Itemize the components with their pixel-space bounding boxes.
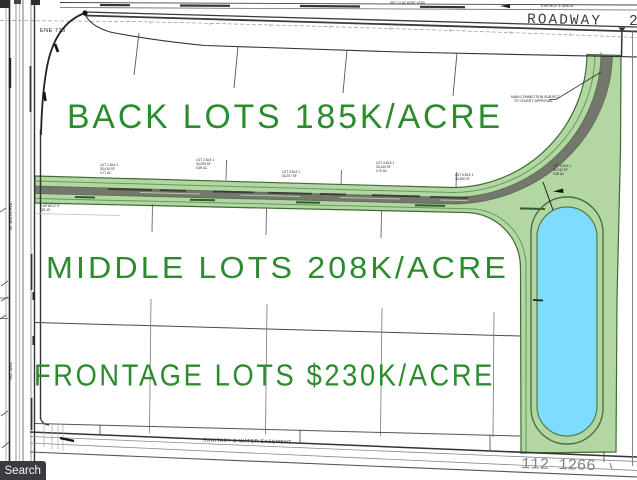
svg-text:0.69 AC: 0.69 AC bbox=[196, 166, 208, 170]
svg-text:FRONTAGE LOTS $230K/ACRE: FRONTAGE LOTS $230K/ACRE bbox=[34, 358, 495, 393]
svg-text:MIDDLE LOTS 208K/ACRE: MIDDLE LOTS 208K/ACRE bbox=[46, 250, 509, 285]
svg-text:ENE 773: ENE 773 bbox=[40, 28, 66, 34]
svg-text:0.69 AC: 0.69 AC bbox=[553, 172, 565, 176]
svg-text:0.77 AC: 0.77 AC bbox=[100, 171, 112, 175]
svg-text:SEC 12 AC ACRE LEAD: SEC 12 AC ACRE LEAD bbox=[390, 1, 426, 5]
svg-text:N 89°58'12" E 2646.33': N 89°58'12" E 2646.33' bbox=[541, 4, 574, 8]
svg-text:112 1266: 112 1266 bbox=[521, 455, 596, 475]
svg-text:NO. 3241: NO. 3241 bbox=[8, 361, 13, 380]
svg-text:TO COUNTY APPROVAL: TO COUNTY APPROVAL bbox=[514, 99, 553, 103]
svg-text:BACK LOTS 185K/ACRE: BACK LOTS 185K/ACRE bbox=[67, 98, 503, 136]
svg-text:2: 2 bbox=[629, 14, 637, 30]
svg-text:329.10': 329.10' bbox=[40, 208, 51, 212]
svg-text:ROADWAY: ROADWAY bbox=[527, 12, 602, 30]
svg-text:0.70 AC: 0.70 AC bbox=[376, 169, 388, 173]
svg-text:30,207 SF: 30,207 SF bbox=[282, 174, 297, 178]
svg-text:W. 164TH AVE: W. 164TH AVE bbox=[8, 202, 13, 230]
svg-text:30,365 SF: 30,365 SF bbox=[455, 177, 470, 181]
